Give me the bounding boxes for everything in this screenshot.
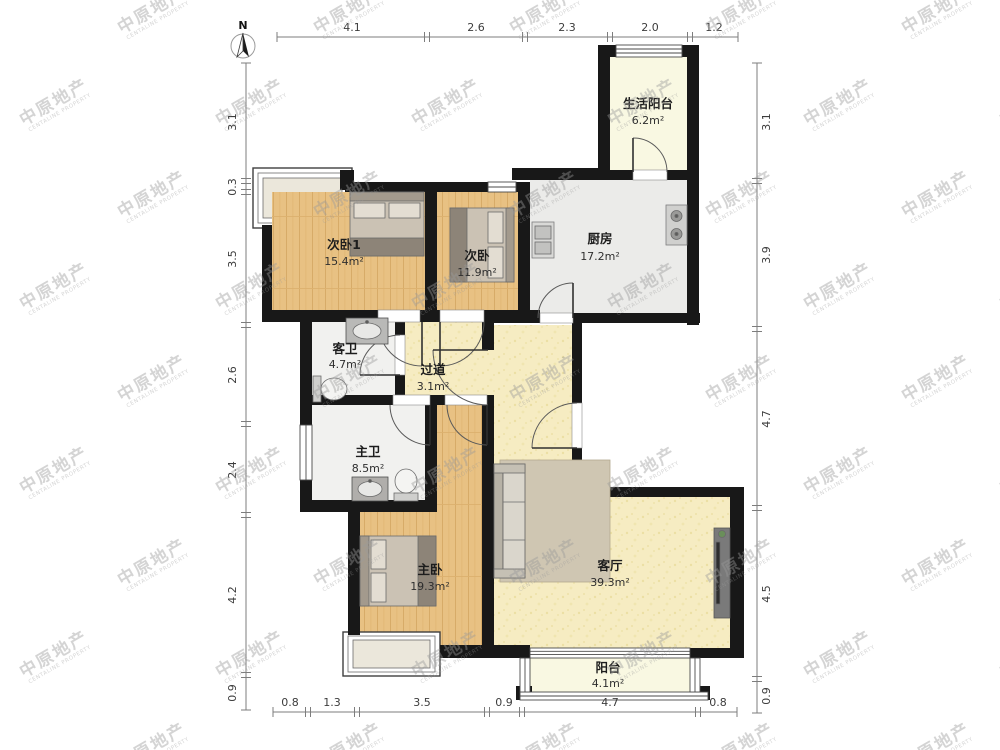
- svg-text:2.6: 2.6: [226, 366, 239, 384]
- svg-text:3.5: 3.5: [226, 250, 239, 268]
- room-guest-bath-name: 客卫: [331, 341, 358, 356]
- stove-icon: [666, 205, 687, 245]
- room-bedroom2-name: 次卧: [464, 248, 490, 263]
- svg-text:3.9: 3.9: [760, 246, 773, 264]
- room-master-bath-name: 主卫: [355, 444, 381, 459]
- svg-text:2.0: 2.0: [641, 21, 659, 34]
- svg-text:0.8: 0.8: [709, 696, 727, 709]
- room-bedroom2-1-area: 15.4m²: [324, 255, 364, 268]
- svg-text:4.7: 4.7: [601, 696, 619, 709]
- svg-text:3.1: 3.1: [226, 113, 239, 131]
- room-balcony-area: 4.1m²: [592, 677, 625, 690]
- north-compass: N: [231, 19, 255, 58]
- room-hallway-area: 3.1m²: [417, 380, 450, 393]
- window-master-bath: [300, 425, 312, 480]
- room-service-balcony-name: 生活阳台: [623, 96, 673, 111]
- room-living-name: 客厅: [596, 558, 623, 573]
- window-living-slider: [530, 648, 690, 658]
- room-service-balcony-area: 6.2m²: [632, 114, 665, 127]
- floor-plan: 生活阳台 6.2m² 厨房 17.2m² 次卧1 15.4m² 次卧 11.9m…: [0, 0, 1000, 750]
- room-bedroom2-1-name: 次卧1: [327, 237, 361, 252]
- room-hallway-name: 过道: [420, 362, 446, 377]
- room-kitchen-area: 17.2m²: [580, 250, 620, 263]
- dimension-right: 3.1 3.9 4.7 4.5 0.9: [752, 63, 773, 713]
- room-master-bedroom-name: 主卧: [417, 562, 443, 577]
- dimension-left: 3.1 0.3 3.5 2.6 2.4 4.2 0.9: [226, 63, 251, 710]
- bed-icon-bedroom2-1: [350, 192, 424, 256]
- svg-text:4.7: 4.7: [760, 410, 773, 428]
- svg-text:0.3: 0.3: [226, 178, 239, 196]
- north-label: N: [238, 19, 247, 32]
- svg-text:2.3: 2.3: [558, 21, 576, 34]
- master-bath-toilet-icon: [394, 469, 418, 501]
- svg-text:4.5: 4.5: [760, 585, 773, 603]
- room-kitchen-name: 厨房: [587, 231, 612, 246]
- master-bath-sink-icon: [352, 477, 388, 501]
- svg-text:0.9: 0.9: [495, 696, 513, 709]
- svg-text:4.1: 4.1: [343, 21, 361, 34]
- dimension-top: 4.1 2.6 2.3 2.0 1.2: [277, 21, 738, 42]
- svg-text:1.2: 1.2: [705, 21, 723, 34]
- room-master-bedroom-area: 19.3m²: [410, 580, 450, 593]
- room-balcony-name: 阳台: [595, 660, 620, 675]
- svg-text:2.6: 2.6: [467, 21, 485, 34]
- bay-window-master-bedroom: [343, 632, 440, 676]
- svg-text:0.9: 0.9: [760, 687, 773, 705]
- window-service-balcony: [616, 45, 682, 57]
- guest-bath-toilet-icon: [313, 376, 347, 402]
- svg-text:3.1: 3.1: [760, 113, 773, 131]
- room-living-area: 39.3m²: [590, 576, 630, 589]
- room-master-bath-area: 8.5m²: [352, 462, 385, 475]
- room-guest-bath-area: 4.7m²: [329, 358, 362, 371]
- window-bedroom2: [488, 182, 516, 192]
- floor-plan-page: 生活阳台 6.2m² 厨房 17.2m² 次卧1 15.4m² 次卧 11.9m…: [0, 0, 1000, 750]
- svg-text:2.4: 2.4: [226, 461, 239, 479]
- tv-console: [714, 528, 730, 618]
- sofa-icon: [494, 464, 525, 578]
- svg-text:0.8: 0.8: [281, 696, 299, 709]
- svg-text:3.5: 3.5: [413, 696, 431, 709]
- kitchen-sink-icon: [532, 222, 554, 258]
- svg-text:4.2: 4.2: [226, 586, 239, 604]
- svg-text:0.9: 0.9: [226, 684, 239, 702]
- room-bedroom2-area: 11.9m²: [457, 266, 497, 279]
- svg-text:1.3: 1.3: [323, 696, 341, 709]
